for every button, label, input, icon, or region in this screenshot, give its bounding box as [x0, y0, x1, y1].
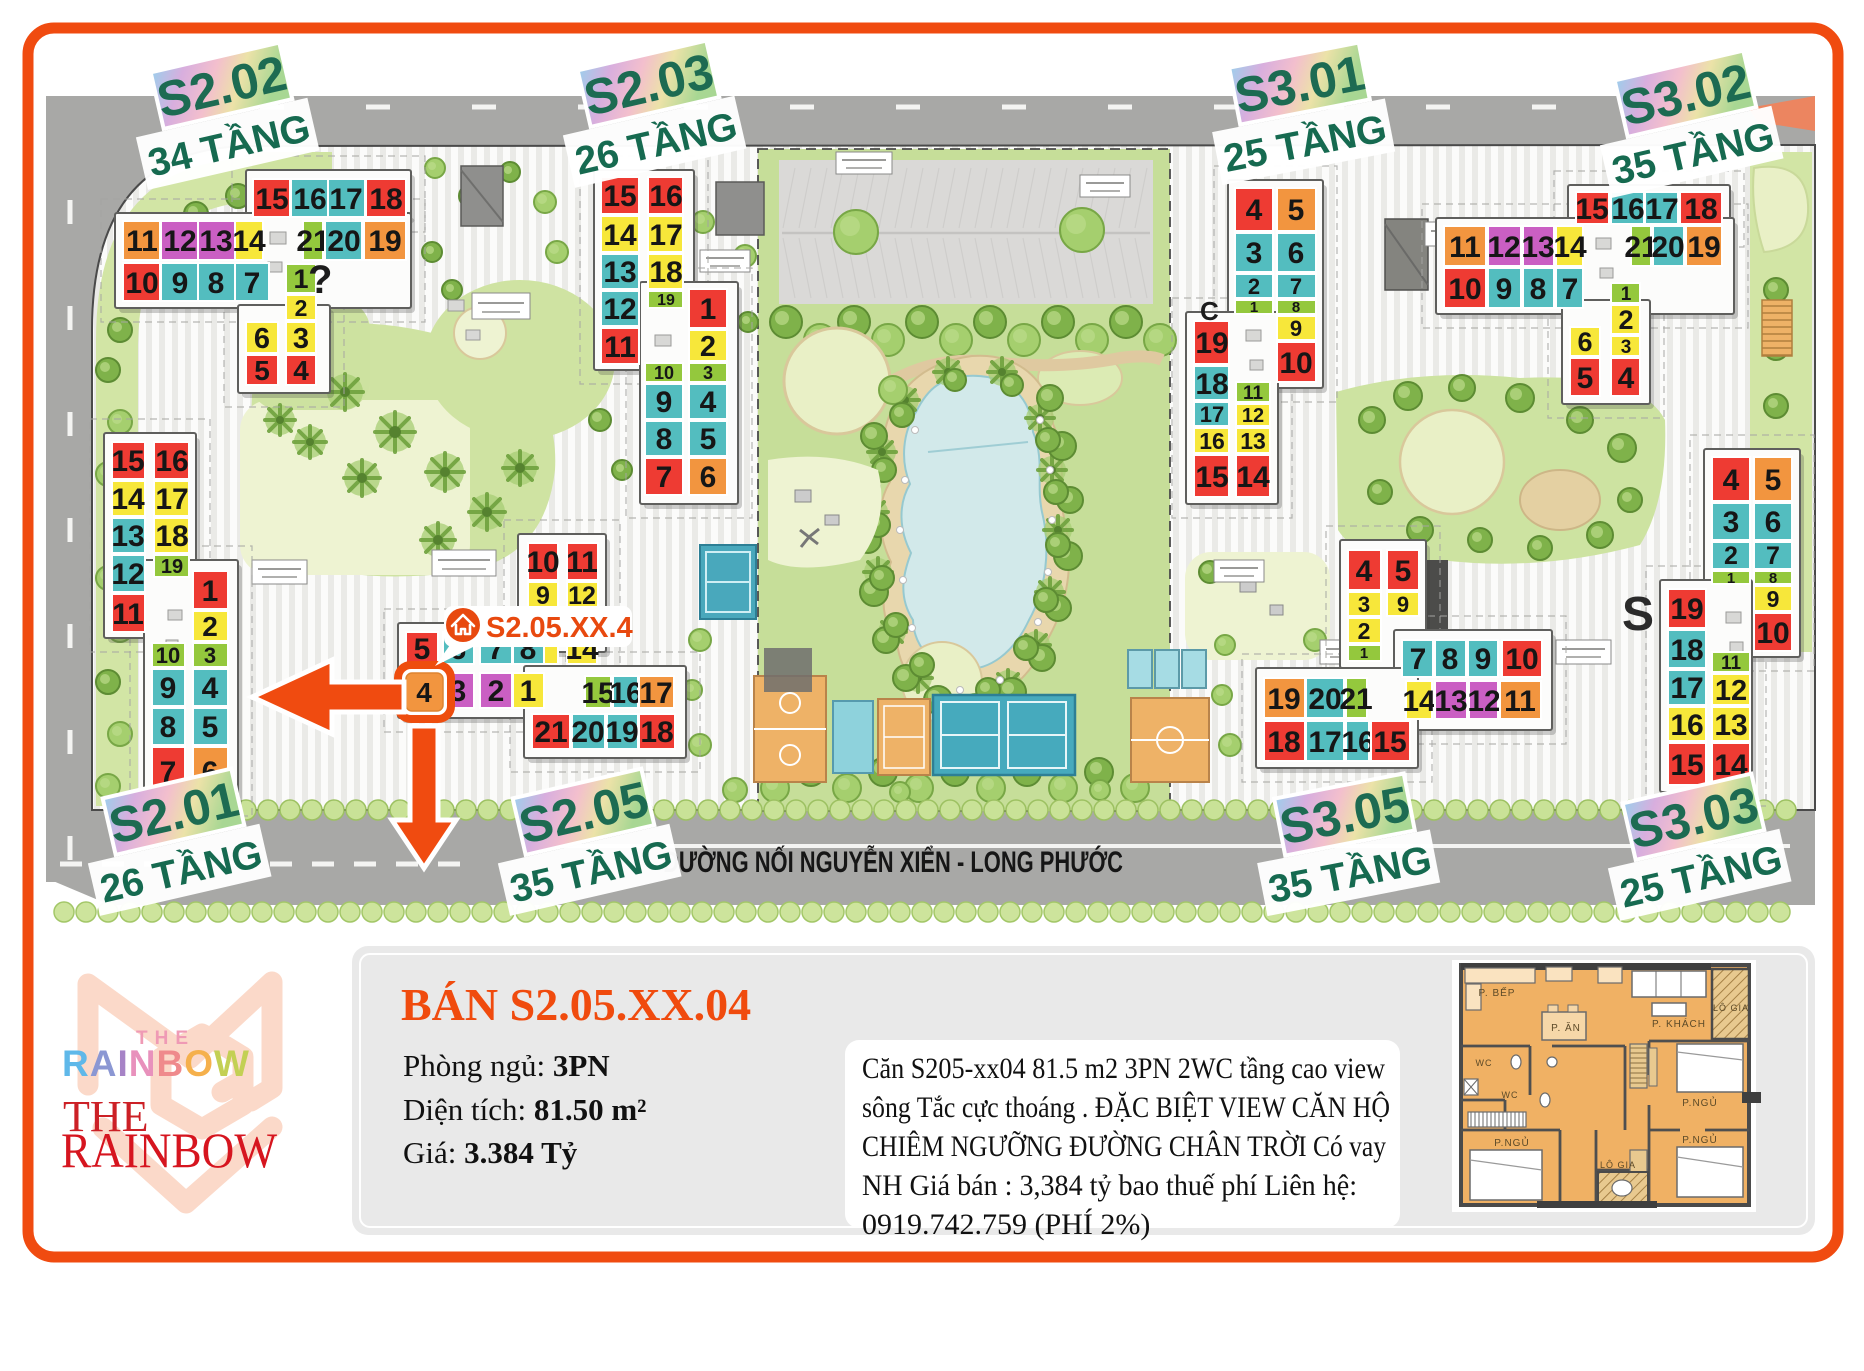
svg-text:17: 17: [1308, 726, 1341, 759]
svg-text:4: 4: [1723, 464, 1740, 497]
svg-text:11: 11: [1721, 653, 1742, 674]
svg-text:13: 13: [1434, 685, 1467, 718]
svg-text:21: 21: [1339, 683, 1372, 716]
svg-text:15: 15: [1670, 749, 1703, 782]
svg-text:16: 16: [1611, 193, 1644, 226]
svg-text:12: 12: [1467, 685, 1500, 718]
svg-text:19: 19: [161, 556, 183, 578]
svg-text:11: 11: [566, 546, 598, 579]
svg-text:9: 9: [656, 386, 673, 419]
svg-text:16: 16: [1670, 709, 1703, 742]
svg-text:10: 10: [1756, 617, 1789, 650]
svg-text:4: 4: [700, 386, 717, 419]
svg-text:14: 14: [232, 225, 266, 258]
svg-text:12: 12: [111, 558, 144, 591]
svg-text:20: 20: [1308, 683, 1341, 716]
svg-text:ĐƯỜNG NỐI NGUYỄN XIỂN - LONG P: ĐƯỜNG NỐI NGUYỄN XIỂN - LONG PHƯỚC: [663, 845, 1123, 879]
svg-text:11: 11: [1449, 231, 1481, 264]
svg-text:Căn S205-xx04 81.5 m2 3PN 2WC: Căn S205-xx04 81.5 m2 3PN 2WC tầng cao v…: [862, 1052, 1385, 1085]
svg-text:CHIÊM NGƯỠNG ĐƯỜNG CHÂN TRỜI C: CHIÊM NGƯỠNG ĐƯỜNG CHÂN TRỜI Có vay: [862, 1130, 1386, 1163]
svg-text:4: 4: [1246, 194, 1263, 227]
svg-text:3: 3: [1621, 337, 1632, 358]
svg-text:Diện tích: 81.50 m²: Diện tích: 81.50 m²: [403, 1092, 646, 1127]
svg-text:15: 15: [603, 180, 636, 213]
svg-text:2: 2: [700, 331, 716, 363]
svg-text:18: 18: [369, 183, 402, 216]
svg-text:19: 19: [1195, 327, 1228, 360]
svg-text:8: 8: [1530, 273, 1547, 306]
svg-text:BÁN S2.05.XX.04: BÁN S2.05.XX.04: [401, 979, 751, 1030]
svg-text:1: 1: [520, 675, 537, 708]
svg-text:11: 11: [1504, 685, 1536, 718]
svg-text:7: 7: [1410, 643, 1427, 676]
svg-text:11: 11: [604, 331, 636, 364]
svg-text:19: 19: [368, 225, 401, 258]
svg-text:6: 6: [254, 323, 270, 355]
svg-text:12: 12: [1242, 405, 1264, 427]
svg-text:2: 2: [202, 611, 218, 642]
svg-text:5: 5: [1288, 194, 1305, 227]
svg-text:NH Giá bán : 3,384 tỷ bao thuế: NH Giá bán : 3,384 tỷ bao thuế phí Liên …: [862, 1169, 1357, 1202]
svg-text:1: 1: [1727, 570, 1735, 587]
svg-text:9: 9: [1496, 273, 1513, 306]
svg-text:3: 3: [1723, 506, 1740, 539]
svg-text:6: 6: [1577, 327, 1592, 357]
svg-text:P.NGỦ: P.NGỦ: [1682, 1096, 1717, 1109]
svg-text:4: 4: [1618, 362, 1635, 395]
svg-text:13: 13: [603, 256, 636, 289]
svg-text:12: 12: [1487, 231, 1520, 264]
svg-text:17: 17: [329, 183, 362, 216]
svg-text:14: 14: [603, 219, 637, 252]
svg-text:8: 8: [656, 423, 673, 456]
svg-text:13: 13: [1714, 709, 1747, 742]
svg-text:5: 5: [1577, 362, 1594, 395]
svg-text:19: 19: [657, 292, 675, 309]
svg-text:7: 7: [1290, 274, 1302, 299]
svg-text:19: 19: [1687, 231, 1720, 264]
svg-text:10: 10: [654, 363, 674, 383]
svg-text:15: 15: [1373, 726, 1406, 759]
svg-text:13: 13: [1521, 231, 1554, 264]
svg-text:10: 10: [1448, 273, 1481, 306]
svg-text:7: 7: [1766, 542, 1780, 570]
svg-text:2: 2: [1618, 305, 1633, 335]
svg-text:10: 10: [156, 643, 180, 668]
svg-text:19: 19: [1267, 683, 1300, 716]
svg-text:S2.05.XX.4: S2.05.XX.4: [486, 612, 633, 644]
svg-text:10: 10: [526, 546, 559, 579]
svg-text:15: 15: [255, 183, 288, 216]
svg-text:3: 3: [293, 323, 309, 355]
svg-text:RAINBOW: RAINBOW: [61, 1122, 278, 1178]
svg-text:P. BẾP: P. BẾP: [1479, 986, 1516, 999]
svg-text:18: 18: [155, 520, 188, 553]
svg-text:19: 19: [605, 716, 638, 749]
svg-text:C: C: [1200, 296, 1219, 326]
svg-text:LÔ GIA: LÔ GIA: [1713, 1003, 1749, 1013]
svg-text:18: 18: [640, 716, 673, 749]
svg-text:17: 17: [639, 677, 672, 710]
svg-text:19: 19: [1670, 593, 1703, 626]
svg-text:18: 18: [1195, 368, 1228, 401]
svg-text:5: 5: [1765, 464, 1782, 497]
svg-text:10: 10: [1279, 347, 1312, 380]
svg-text:P. KHÁCH: P. KHÁCH: [1652, 1017, 1706, 1030]
svg-text:2: 2: [488, 675, 505, 708]
svg-text:1: 1: [1360, 645, 1368, 662]
svg-text:14: 14: [1236, 461, 1270, 494]
svg-text:P.NGỦ: P.NGỦ: [1494, 1136, 1529, 1149]
svg-text:5: 5: [700, 423, 717, 456]
svg-text:8: 8: [160, 711, 177, 744]
svg-text:13: 13: [111, 520, 144, 553]
svg-text:12: 12: [1715, 675, 1747, 707]
svg-text:10: 10: [125, 267, 158, 300]
svg-text:17: 17: [1670, 672, 1703, 705]
svg-text:3: 3: [1358, 592, 1370, 617]
svg-text:5: 5: [1395, 555, 1412, 588]
svg-text:2: 2: [1358, 618, 1371, 644]
svg-text:17: 17: [1645, 193, 1678, 226]
svg-text:3: 3: [703, 363, 713, 383]
svg-text:12: 12: [603, 293, 636, 326]
svg-text:P. ĂN: P. ĂN: [1551, 1021, 1581, 1034]
svg-text:2: 2: [1724, 542, 1738, 570]
svg-text:7: 7: [656, 461, 673, 494]
svg-text:11: 11: [112, 598, 144, 631]
svg-text:LÔ GIA: LÔ GIA: [1600, 1160, 1636, 1170]
svg-text:20: 20: [1651, 231, 1684, 264]
svg-text:16: 16: [293, 183, 326, 216]
svg-text:11: 11: [126, 225, 158, 258]
svg-text:9: 9: [1290, 316, 1302, 341]
svg-text:4: 4: [416, 677, 432, 708]
svg-text:21: 21: [534, 716, 567, 749]
svg-text:15: 15: [1195, 461, 1228, 494]
svg-text:0919.742.759 (PHÍ 2%): 0919.742.759 (PHÍ 2%): [862, 1208, 1150, 1241]
svg-text:16: 16: [649, 180, 682, 213]
svg-text:17: 17: [649, 219, 682, 252]
svg-text:16: 16: [1199, 428, 1225, 454]
svg-text:2: 2: [1248, 274, 1260, 299]
svg-text:11: 11: [1243, 383, 1264, 404]
svg-text:1: 1: [202, 575, 219, 608]
svg-text:8: 8: [1292, 299, 1300, 316]
svg-text:17: 17: [155, 483, 188, 516]
svg-text:6: 6: [700, 461, 717, 494]
svg-text:20: 20: [571, 716, 604, 749]
svg-text:WC: WC: [1476, 1058, 1493, 1068]
svg-text:9: 9: [1767, 586, 1780, 612]
svg-text:17: 17: [1200, 402, 1224, 427]
svg-text:1: 1: [1250, 299, 1258, 316]
svg-text:8: 8: [1769, 570, 1777, 587]
svg-text:16: 16: [155, 445, 188, 478]
svg-text:8: 8: [208, 267, 225, 300]
svg-text:9: 9: [1475, 643, 1492, 676]
svg-text:5: 5: [254, 355, 270, 386]
svg-text:4: 4: [293, 355, 309, 386]
svg-text:14: 14: [1402, 685, 1436, 718]
svg-text:Phòng ngủ: 3PN: Phòng ngủ: 3PN: [403, 1048, 610, 1083]
svg-text:7: 7: [1562, 273, 1579, 306]
svg-text:4: 4: [1356, 555, 1373, 588]
svg-text:15: 15: [1575, 193, 1608, 226]
svg-text:14: 14: [1553, 231, 1587, 264]
svg-text:13: 13: [199, 225, 232, 258]
svg-text:18: 18: [1684, 193, 1717, 226]
svg-text:5: 5: [202, 711, 219, 744]
svg-text:9: 9: [172, 267, 189, 300]
svg-text:14: 14: [111, 483, 145, 516]
svg-text:2: 2: [295, 295, 308, 321]
svg-text:RAINBOW: RAINBOW: [62, 1043, 250, 1084]
svg-text:18: 18: [1670, 634, 1703, 667]
svg-text:3: 3: [1246, 237, 1263, 270]
svg-text:Giá: 3.384 Tỷ: Giá: 3.384 Tỷ: [403, 1135, 578, 1170]
svg-text:1: 1: [700, 293, 717, 326]
svg-text:12: 12: [568, 582, 596, 610]
svg-text:9: 9: [536, 582, 550, 610]
svg-text:sông Tắc cực thoáng . ĐẶC BIỆT: sông Tắc cực thoáng . ĐẶC BIỆT VIEW CĂN …: [862, 1091, 1390, 1124]
svg-text:S: S: [1622, 588, 1654, 641]
svg-text:8: 8: [1442, 643, 1459, 676]
svg-text:1: 1: [293, 264, 308, 294]
svg-text:7: 7: [244, 267, 261, 300]
svg-text:16: 16: [1341, 726, 1374, 759]
svg-text:9: 9: [160, 672, 177, 705]
svg-text:1: 1: [1621, 284, 1632, 305]
svg-text:16: 16: [609, 677, 642, 710]
svg-text:6: 6: [1765, 506, 1782, 539]
svg-text:18: 18: [649, 256, 682, 289]
svg-text:10: 10: [1505, 643, 1538, 676]
svg-text:20: 20: [327, 225, 360, 258]
svg-text:?: ?: [308, 258, 332, 302]
svg-text:6: 6: [1288, 237, 1305, 270]
svg-text:15: 15: [111, 445, 144, 478]
svg-text:3: 3: [204, 643, 216, 668]
svg-text:P.NGỦ: P.NGỦ: [1682, 1133, 1717, 1146]
svg-text:9: 9: [1397, 592, 1409, 617]
svg-text:18: 18: [1267, 726, 1300, 759]
svg-text:13: 13: [1240, 428, 1266, 454]
svg-text:12: 12: [163, 225, 196, 258]
svg-text:4: 4: [202, 672, 219, 705]
svg-text:WC: WC: [1502, 1090, 1519, 1100]
